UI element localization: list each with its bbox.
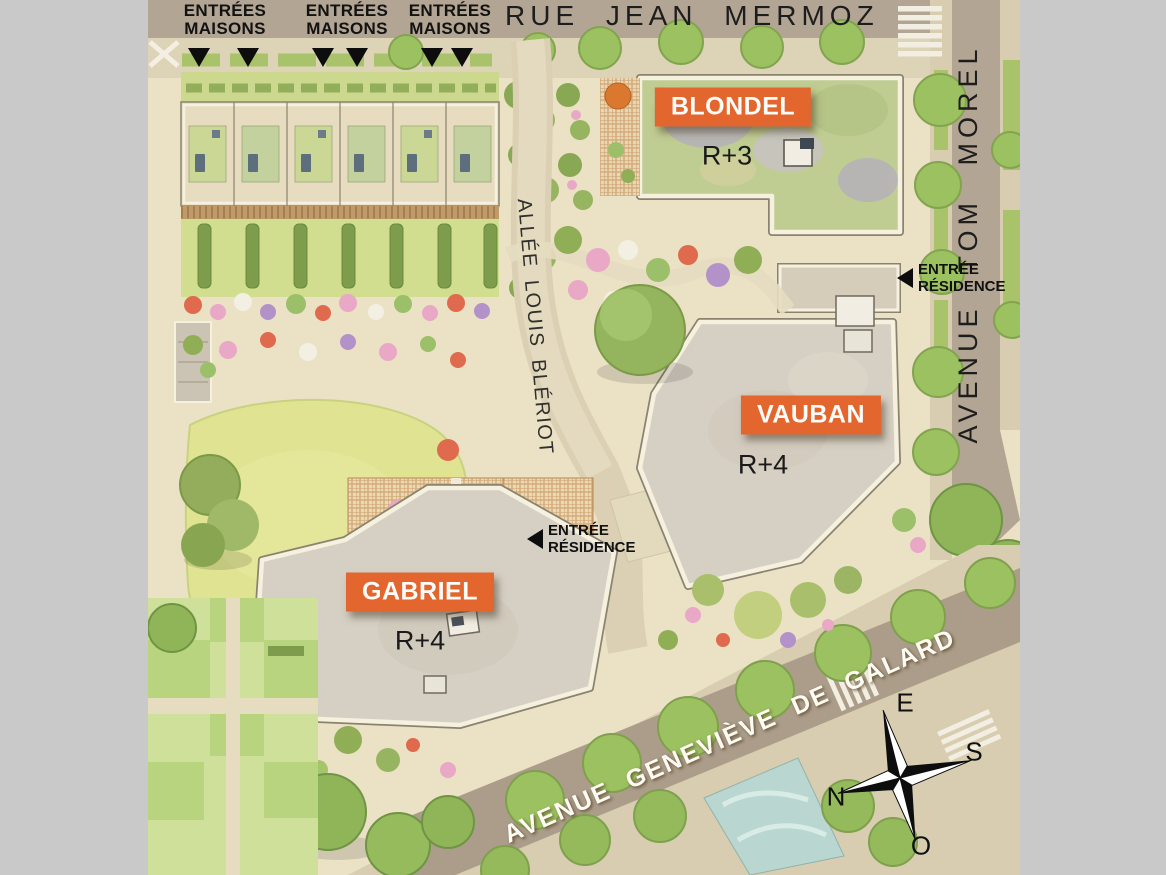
maison-entrance-arrow: [421, 48, 443, 67]
maisons-block: [181, 72, 499, 219]
maison-entrance-arrow: [237, 48, 259, 67]
entrees-maisons-label-1: ENTRÉES MAISONS: [163, 2, 287, 38]
entree-residence-east: ENTRÉE RÉSIDENCE: [897, 261, 1006, 296]
building-floors-gabriel: R+4: [395, 626, 445, 657]
pergola-wall: [175, 322, 211, 402]
maison-entrance-arrow: [188, 48, 210, 67]
site-plan-artwork: [148, 0, 1020, 875]
building-floors-vauban: R+4: [738, 450, 788, 481]
compass-east: E: [896, 688, 913, 719]
building-floors-blondel: R+3: [702, 141, 752, 172]
maison-entrance-arrow: [451, 48, 473, 67]
street-name-rue-jean-mermoz: RUE JEAN MERMOZ: [505, 0, 879, 32]
compass-south: S: [965, 737, 982, 768]
orange-tree: [605, 83, 631, 109]
street-name-avenue-tom-morel: AVENUE TOM MOREL: [953, 24, 983, 464]
compass-west: O: [911, 831, 931, 862]
building-label-vauban: VAUBAN: [741, 396, 881, 435]
entree-residence-label: ENTRÉE RÉSIDENCE: [548, 522, 636, 557]
bottom-left-lawn: [148, 598, 318, 875]
entrees-maisons-label-3: ENTRÉES MAISONS: [388, 2, 512, 38]
entree-residence-label: ENTRÉE RÉSIDENCE: [918, 261, 1006, 296]
residence-entrance-arrow: [897, 268, 913, 288]
site-plan-page: ENTRÉES MAISONS ENTRÉES MAISONS ENTRÉES …: [0, 0, 1166, 875]
maison-entrance-arrow: [346, 48, 368, 67]
compass-north: N: [827, 782, 846, 813]
entree-residence-middle: ENTRÉE RÉSIDENCE: [527, 522, 636, 557]
building-label-blondel: BLONDEL: [655, 88, 811, 127]
maison-entrance-arrow: [312, 48, 334, 67]
building-label-gabriel: GABRIEL: [346, 573, 494, 612]
residence-entrance-arrow: [527, 529, 543, 549]
